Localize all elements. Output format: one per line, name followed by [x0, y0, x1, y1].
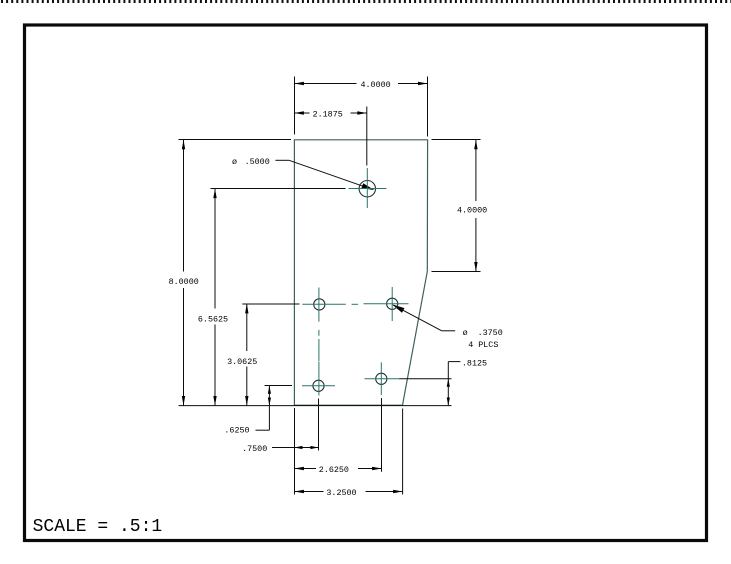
svg-text:.3750: .3750 [478, 328, 503, 338]
svg-text:2.6250: 2.6250 [319, 465, 349, 475]
svg-text:6.5625: 6.5625 [198, 314, 228, 324]
svg-text:SCALE = .5:1: SCALE = .5:1 [33, 517, 163, 537]
svg-text:4.0000: 4.0000 [361, 80, 391, 90]
svg-text:.7500: .7500 [242, 444, 267, 454]
svg-text:4.0000: 4.0000 [457, 206, 487, 216]
svg-text:ø: ø [232, 157, 237, 167]
svg-text:ø: ø [463, 328, 468, 338]
svg-text:.8125: .8125 [462, 358, 487, 368]
svg-text:3.2500: 3.2500 [326, 488, 356, 498]
svg-text:4 PLCS: 4 PLCS [468, 340, 498, 350]
svg-text:2.1875: 2.1875 [313, 109, 343, 119]
svg-text:.5000: .5000 [245, 157, 270, 167]
svg-text:8.0000: 8.0000 [169, 277, 199, 287]
svg-text:.6250: .6250 [224, 425, 249, 435]
svg-text:3.0625: 3.0625 [227, 357, 257, 367]
